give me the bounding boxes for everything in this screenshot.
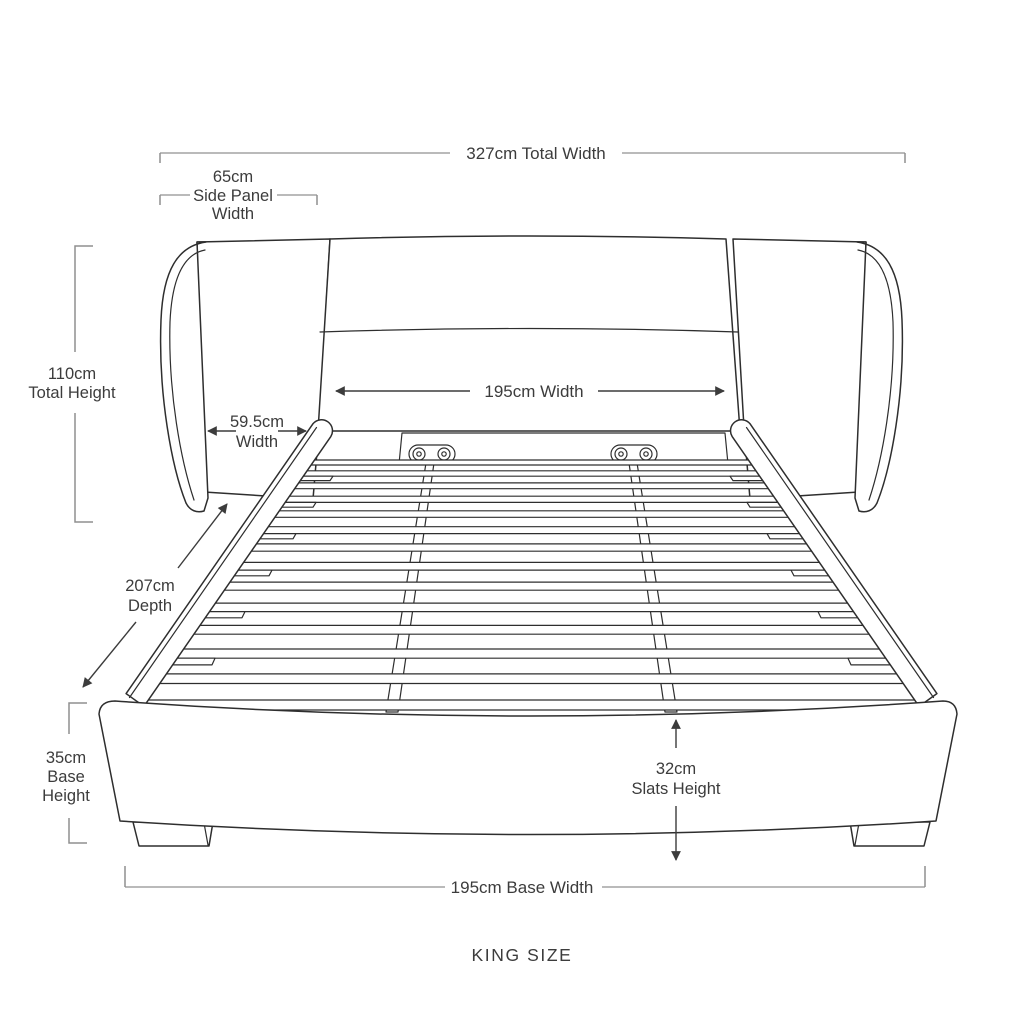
dim-depth-label-2: Depth: [128, 597, 172, 615]
dim-panel-width-label-1: 59.5cm: [230, 413, 284, 431]
bed-dimension-diagram: 327cm Total Width 65cm Side Panel Width …: [0, 0, 1024, 1024]
hinge-left-screw-inner: [417, 452, 421, 456]
dim-slats-height-label-2: Slats Height: [632, 780, 721, 798]
bed-base: [99, 701, 957, 835]
dim-total-width: 327cm Total Width: [160, 144, 905, 163]
headboard-centre-panel: [318, 236, 740, 431]
product-size-label: KING SIZE: [472, 945, 573, 965]
dim-total-height-label-2: Total Height: [28, 384, 116, 402]
dim-headboard-width-label: 195cm Width: [484, 382, 583, 401]
dim-total-width-label: 327cm Total Width: [466, 144, 606, 163]
back-panel: [399, 433, 728, 464]
dim-base-height-label-3: Height: [42, 787, 90, 805]
slats: [135, 460, 928, 710]
dim-side-panel-width-label-3: Width: [212, 205, 254, 223]
dim-base-height-label-2: Base: [47, 768, 85, 786]
dim-slats-height-label-1: 32cm: [656, 760, 696, 778]
spec-sheet: 327cm Total Width 65cm Side Panel Width …: [0, 0, 1024, 1024]
hinge-right-screw-inner-2: [644, 452, 648, 456]
dim-base-height-label-1: 35cm: [46, 749, 86, 767]
hinge-right-screw-inner: [619, 452, 623, 456]
dim-side-panel-width-label-1: 65cm: [213, 168, 253, 186]
dim-panel-width-label-2: Width: [236, 433, 278, 451]
dim-base-width: 195cm Base Width: [125, 866, 925, 897]
bed-illustration: [99, 236, 957, 846]
dim-side-panel-width: 65cm Side Panel Width: [160, 168, 317, 223]
dim-base-width-label: 195cm Base Width: [451, 878, 594, 897]
dim-base-height: 35cm Base Height: [42, 703, 90, 843]
dim-total-height: 110cm Total Height: [28, 246, 116, 522]
hinge-left-screw-inner-2: [442, 452, 446, 456]
dim-total-height-label-1: 110cm: [48, 365, 96, 383]
dim-depth-label-1: 207cm: [125, 577, 175, 595]
dim-side-panel-width-label-2: Side Panel: [193, 187, 273, 205]
slat-boards: [135, 460, 928, 710]
dim-depth-arrow-down: [83, 622, 136, 687]
